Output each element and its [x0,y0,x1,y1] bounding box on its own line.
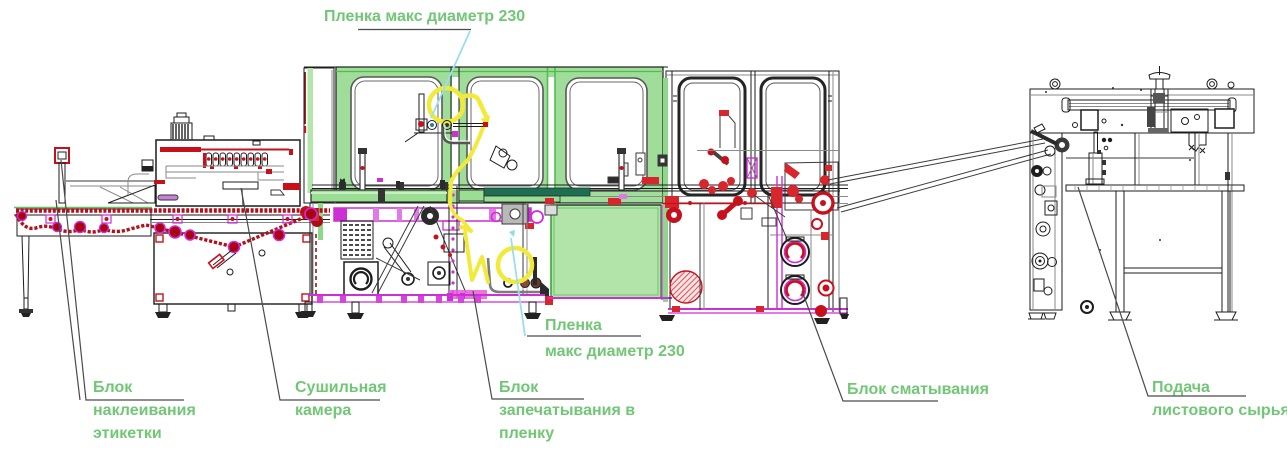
svg-text:пленку: пленку [499,425,554,442]
svg-text:запечатывания в: запечатывания в [499,402,635,419]
svg-text:наклеивания: наклеивания [93,402,196,419]
svg-text:Блок: Блок [93,379,133,396]
svg-text:макс диаметр 230: макс диаметр 230 [545,343,685,360]
svg-text:камера: камера [295,402,351,419]
svg-text:Подача: Подача [1152,379,1210,396]
svg-text:Пленка: Пленка [545,317,602,334]
svg-text:Блок сматывания: Блок сматывания [847,381,989,398]
svg-text:Сушильная: Сушильная [295,379,387,396]
svg-text:этикетки: этикетки [93,425,162,442]
svg-text:листового сырья: листового сырья [1152,402,1287,419]
svg-text:Пленка макс диаметр 230: Пленка макс диаметр 230 [324,8,525,25]
svg-text:Блок: Блок [499,379,539,396]
